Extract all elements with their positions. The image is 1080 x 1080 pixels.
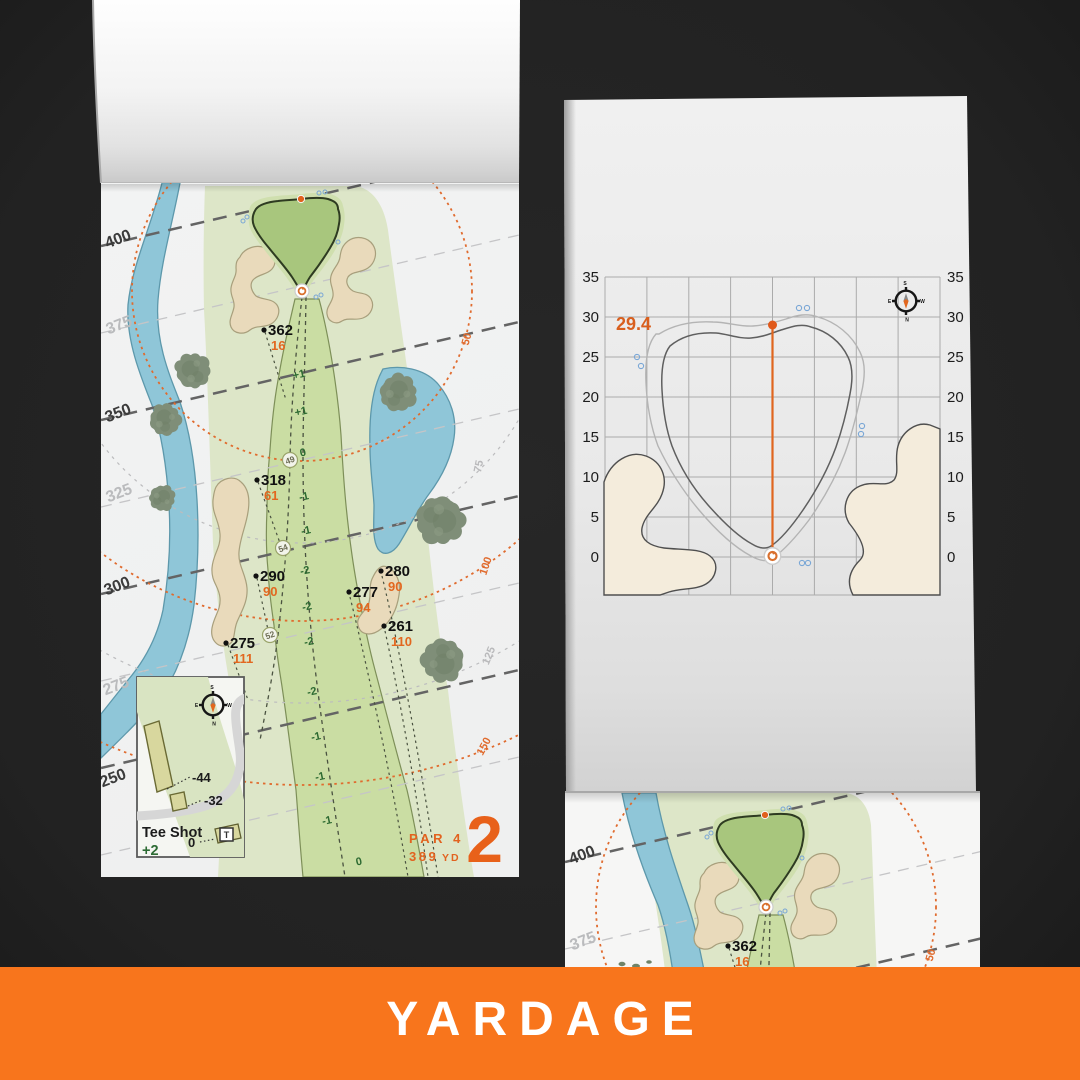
svg-text:YARDAGE: YARDAGE [386, 993, 706, 1046]
